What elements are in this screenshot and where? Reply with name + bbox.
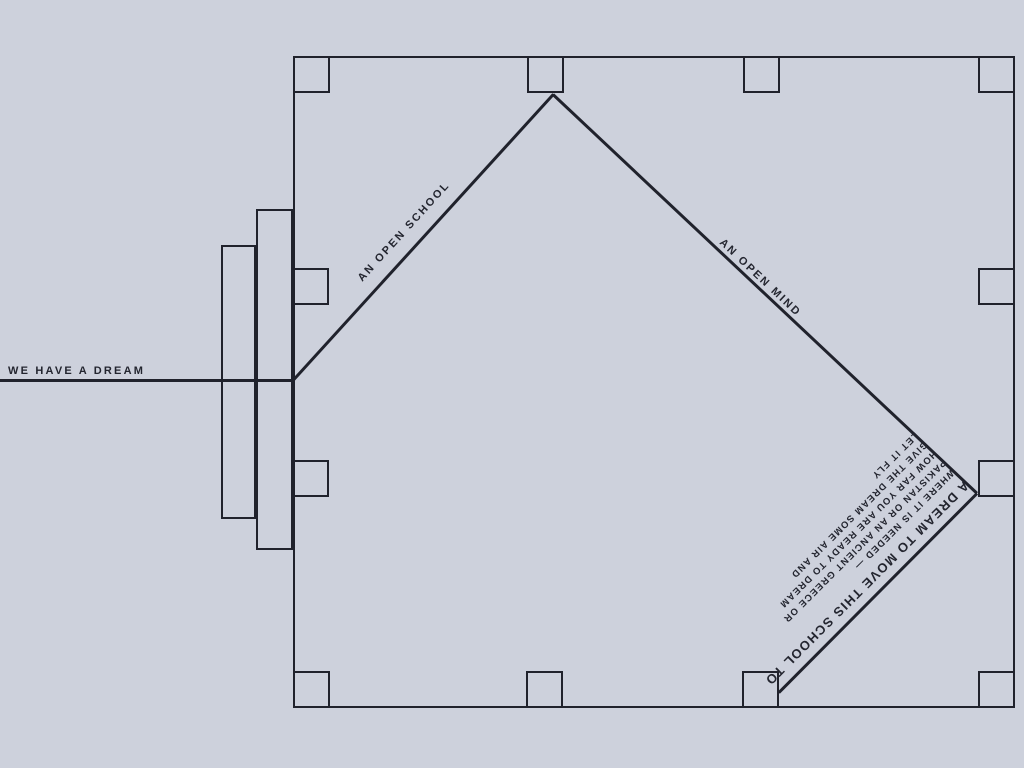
column-marker bbox=[526, 671, 563, 708]
entrance-wall-outer bbox=[221, 245, 256, 519]
column-marker bbox=[978, 268, 1015, 305]
column-marker bbox=[292, 460, 329, 497]
column-marker bbox=[293, 56, 330, 93]
floor-plan-canvas: WE HAVE A DREAM AN OPEN SCHOOL AN OPEN M… bbox=[0, 0, 1024, 768]
column-marker bbox=[743, 56, 780, 93]
we-have-a-dream-line bbox=[0, 379, 294, 382]
column-marker bbox=[527, 56, 564, 93]
column-marker bbox=[978, 671, 1015, 708]
column-marker bbox=[978, 56, 1015, 93]
building-outline bbox=[293, 56, 1015, 708]
column-marker bbox=[292, 268, 329, 305]
column-marker bbox=[293, 671, 330, 708]
we-have-a-dream-label: WE HAVE A DREAM bbox=[8, 365, 145, 377]
column-marker bbox=[978, 460, 1015, 497]
